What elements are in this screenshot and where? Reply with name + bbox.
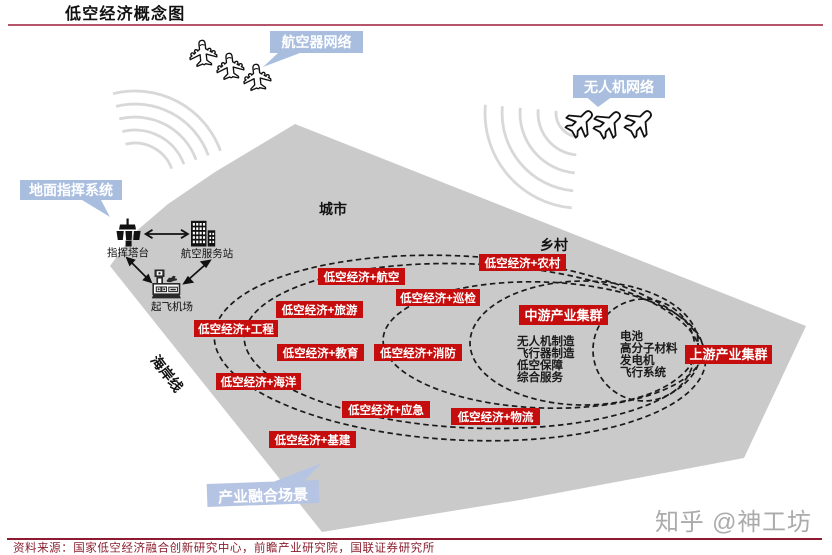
svg-text:无人机网络: 无人机网络 xyxy=(583,79,654,95)
svg-text:综合服务: 综合服务 xyxy=(517,370,563,384)
svg-text:低空经济+海洋: 低空经济+海洋 xyxy=(220,375,297,389)
svg-text:起飞机场: 起飞机场 xyxy=(151,300,193,313)
svg-text:电池: 电池 xyxy=(620,329,643,343)
svg-text:低空经济+工程: 低空经济+工程 xyxy=(197,322,274,336)
svg-text:低空经济+旅游: 低空经济+旅游 xyxy=(281,303,358,317)
svg-text:无人机制造: 无人机制造 xyxy=(516,334,575,348)
svg-text:低空经济+教育: 低空经济+教育 xyxy=(282,346,359,360)
svg-text:航空服务站: 航空服务站 xyxy=(181,247,234,260)
svg-text:低空经济概念图: 低空经济概念图 xyxy=(64,4,185,23)
svg-text:航空器网络: 航空器网络 xyxy=(282,34,352,50)
svg-text:知乎 @神工坊: 知乎 @神工坊 xyxy=(655,509,812,536)
svg-text:飞行系统: 飞行系统 xyxy=(620,365,666,379)
svg-text:高分子材料: 高分子材料 xyxy=(620,341,678,355)
svg-text:乡村: 乡村 xyxy=(540,237,568,253)
svg-text:低空保障: 低空保障 xyxy=(516,358,563,372)
svg-text:低空经济+物流: 低空经济+物流 xyxy=(457,410,534,424)
svg-text:指挥塔台: 指挥塔台 xyxy=(107,246,149,259)
svg-text:低空经济+应急: 低空经济+应急 xyxy=(347,403,424,417)
svg-text:低空经济+基建: 低空经济+基建 xyxy=(274,433,351,447)
svg-text:飞行器制造: 飞行器制造 xyxy=(517,346,575,360)
svg-text:产业融合场景: 产业融合场景 xyxy=(218,485,309,506)
svg-text:城市: 城市 xyxy=(319,201,347,217)
svg-text:低空经济+航空: 低空经济+航空 xyxy=(323,270,400,284)
svg-text:地面指挥系统: 地面指挥系统 xyxy=(29,182,113,198)
svg-text:低空经济+消防: 低空经济+消防 xyxy=(379,346,456,360)
svg-text:低空经济+巡检: 低空经济+巡检 xyxy=(399,291,476,305)
svg-text:中游产业集群: 中游产业集群 xyxy=(524,308,602,323)
svg-text:发电机: 发电机 xyxy=(619,353,655,367)
svg-text:上游产业集群: 上游产业集群 xyxy=(689,347,767,362)
svg-text:低空经济+农村: 低空经济+农村 xyxy=(484,256,561,270)
svg-text:资料来源：国家低空经济融合创新研究中心，前瞻产业研究院，国联: 资料来源：国家低空经济融合创新研究中心，前瞻产业研究院，国联证券研究所 xyxy=(13,541,435,555)
